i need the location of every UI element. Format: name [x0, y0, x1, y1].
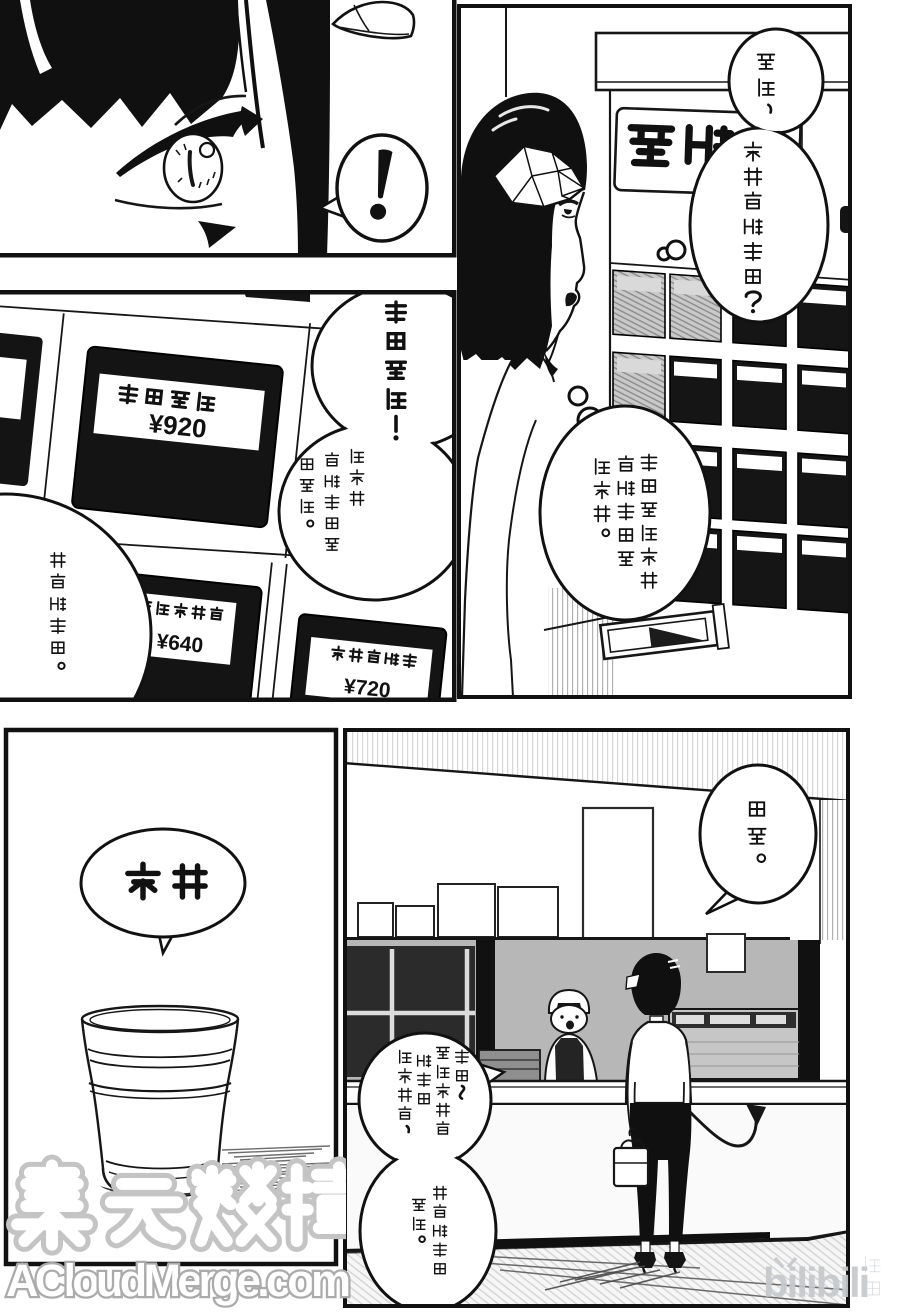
svg-text:¥920: ¥920 [147, 408, 208, 444]
svg-text:¥640: ¥640 [155, 630, 204, 658]
svg-text:ACloudMerge.com: ACloudMerge.com [6, 1255, 352, 1306]
svg-text:bilibili: bilibili [763, 1259, 868, 1306]
